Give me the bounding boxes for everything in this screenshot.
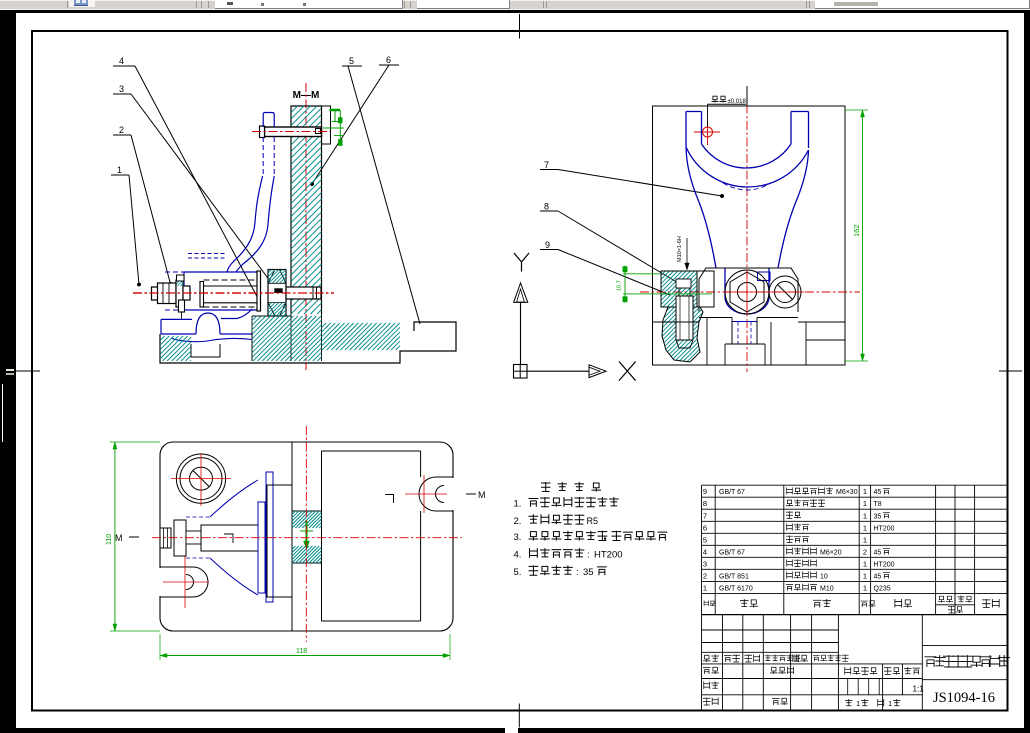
svg-text:M: M — [478, 490, 486, 500]
svg-text:HT200: HT200 — [594, 550, 623, 561]
svg-text:118: 118 — [296, 648, 307, 655]
svg-text:3: 3 — [119, 84, 124, 94]
svg-text:1: 1 — [863, 535, 867, 544]
svg-text:6: 6 — [703, 523, 707, 532]
svg-text:HT200: HT200 — [874, 525, 895, 532]
svg-text:45: 45 — [874, 549, 882, 556]
svg-text:45: 45 — [874, 489, 882, 496]
svg-text:2.: 2. — [514, 516, 522, 527]
svg-text:8: 8 — [703, 499, 707, 508]
svg-text:2: 2 — [119, 125, 124, 135]
svg-text::: : — [576, 567, 579, 578]
svg-text:M10: M10 — [820, 585, 834, 592]
svg-text:1: 1 — [863, 583, 867, 592]
svg-text:10.7: 10.7 — [617, 280, 623, 291]
svg-text:4: 4 — [703, 547, 707, 556]
svg-text:5.: 5. — [514, 567, 522, 578]
svg-text:1: 1 — [703, 583, 707, 592]
svg-text:8: 8 — [544, 202, 549, 212]
svg-text:T8: T8 — [874, 501, 882, 508]
svg-text:JS1094-16: JS1094-16 — [933, 690, 995, 706]
svg-text::: : — [587, 550, 590, 561]
svg-text:162: 162 — [852, 224, 861, 237]
svg-text:1: 1 — [856, 699, 860, 708]
svg-text:GB/T 67: GB/T 67 — [719, 549, 745, 556]
svg-text:M6×20: M6×20 — [820, 549, 842, 556]
svg-text:5: 5 — [349, 56, 354, 66]
svg-text:2: 2 — [703, 571, 707, 580]
svg-text:1: 1 — [863, 499, 867, 508]
svg-text:9: 9 — [545, 240, 550, 250]
svg-text:M10×1-6H: M10×1-6H — [677, 236, 683, 262]
svg-text:110: 110 — [106, 534, 113, 545]
svg-text:1: 1 — [863, 511, 867, 520]
svg-text:7: 7 — [544, 160, 549, 170]
svg-text:35: 35 — [583, 567, 594, 578]
svg-text:5: 5 — [703, 535, 707, 544]
svg-text:3.: 3. — [514, 532, 522, 543]
svg-text:Q235: Q235 — [874, 585, 891, 592]
svg-text:1: 1 — [888, 699, 892, 708]
svg-text:GB/T 851: GB/T 851 — [719, 573, 749, 580]
svg-text:1.: 1. — [514, 499, 522, 510]
svg-text:45: 45 — [874, 573, 882, 580]
svg-text:1: 1 — [863, 571, 867, 580]
svg-text:3: 3 — [703, 559, 707, 568]
svg-text:1: 1 — [863, 487, 867, 496]
svg-text:M6×30: M6×30 — [836, 489, 858, 496]
svg-text:9: 9 — [703, 487, 707, 496]
svg-text:4.: 4. — [514, 550, 522, 561]
svg-text:1: 1 — [117, 165, 122, 175]
svg-text:1: 1 — [863, 523, 867, 532]
svg-text:HT200: HT200 — [874, 561, 895, 568]
svg-text:7: 7 — [703, 511, 707, 520]
svg-text:GB/T 67: GB/T 67 — [719, 489, 745, 496]
svg-text:2: 2 — [863, 547, 867, 556]
svg-text:±0.018: ±0.018 — [728, 99, 747, 105]
svg-text:GB/T 6170: GB/T 6170 — [719, 585, 753, 592]
svg-text:M: M — [115, 533, 123, 543]
svg-text:4: 4 — [119, 56, 124, 66]
svg-text:10: 10 — [820, 573, 828, 580]
svg-text:35: 35 — [874, 513, 882, 520]
svg-text:6: 6 — [386, 55, 391, 65]
svg-text:1:1: 1:1 — [913, 685, 925, 694]
svg-text:1: 1 — [863, 559, 867, 568]
svg-text:R5: R5 — [587, 516, 599, 526]
